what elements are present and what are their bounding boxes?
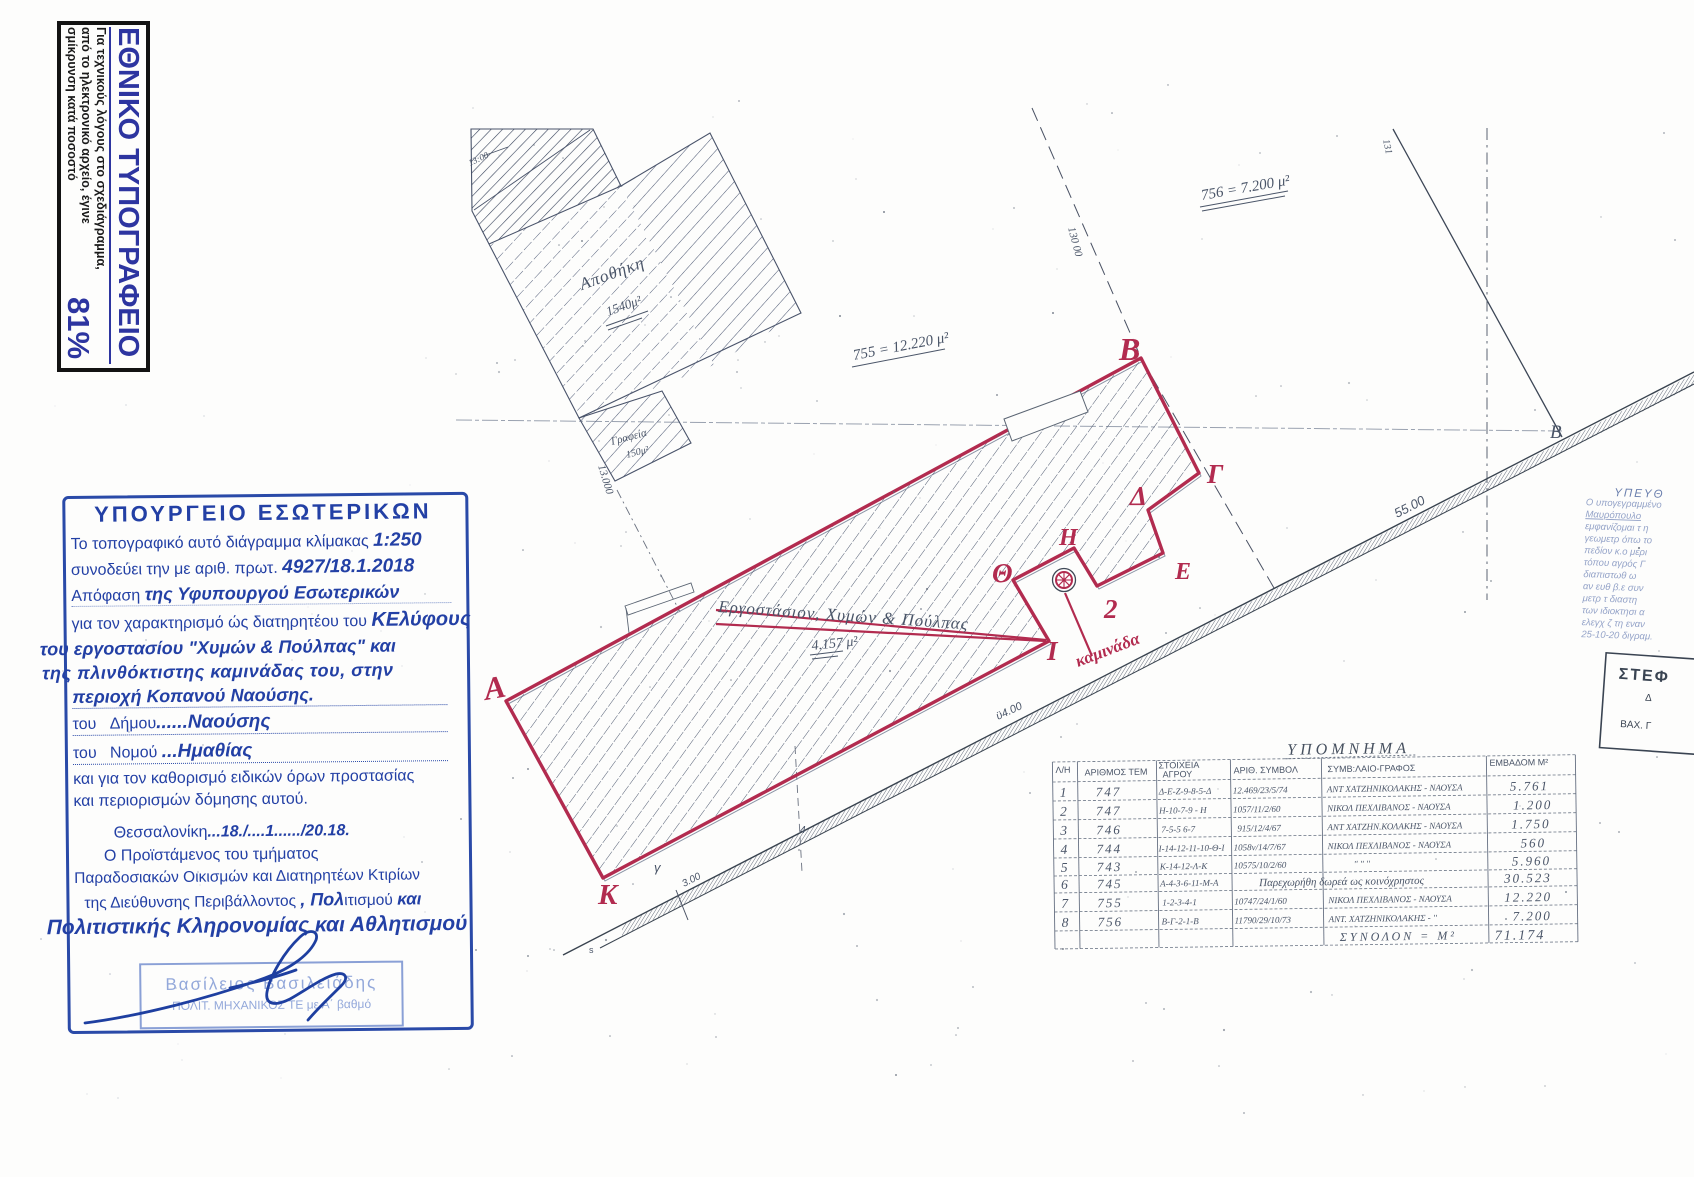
svg-text:4: 4 [1061, 842, 1068, 857]
svg-text:ΝΙΚΟΛ ΠΕΧΛΙΒΑΝΟΣ - ΝΑΟΥΣΑ: ΝΙΚΟΛ ΠΕΧΛΙΒΑΝΟΣ - ΝΑΟΥΣΑ [1327, 839, 1452, 851]
svg-text:12.469/23/5/74: 12.469/23/5/74 [1233, 785, 1288, 796]
svg-text:7.200: 7.200 [1512, 908, 1551, 924]
svg-text:ΑΝΤ ΧΑΤΖΗΝΙΚΟΛΑΚΗΣ - ΝΑΟΥΣΑ: ΑΝΤ ΧΑΤΖΗΝΙΚΟΛΑΚΗΣ - ΝΑΟΥΣΑ [1326, 782, 1463, 794]
svg-text:αν ευθ β.ε συν: αν ευθ β.ε συν [1583, 581, 1644, 594]
svg-text:5.761: 5.761 [1510, 778, 1549, 794]
svg-text:Λ/Η: Λ/Η [1055, 765, 1070, 775]
svg-text:25-10-20 διγραμ.: 25-10-20 διγραμ. [1580, 629, 1653, 643]
svg-text:3: 3 [1059, 823, 1067, 838]
svg-text:7-5-5 6-7: 7-5-5 6-7 [1161, 824, 1195, 834]
svg-text:4: 4 [800, 825, 806, 836]
svg-text:B: B [1550, 422, 1562, 443]
svg-text:5.960: 5.960 [1512, 853, 1551, 869]
svg-text:10747/24/1/60: 10747/24/1/60 [1234, 896, 1287, 907]
svg-text:Δ: Δ [1129, 481, 1147, 511]
svg-text:755 = 12.220 μ²: 755 = 12.220 μ² [852, 330, 951, 364]
svg-text:747: 747 [1096, 784, 1122, 799]
svg-text:ΑΡΙΘ. ΣΥΜΒΟΛ: ΑΡΙΘ. ΣΥΜΒΟΛ [1233, 765, 1298, 776]
svg-text:Γ: Γ [1206, 459, 1224, 489]
svg-text:ΑΓΡΟΥ: ΑΓΡΟΥ [1163, 769, 1193, 779]
svg-text:ΝΙΚΟΛ ΠΕΧΛΙΒΑΝΟΣ - ΝΑΟΥΣΑ: ΝΙΚΟΛ ΠΕΧΛΙΒΑΝΟΣ - ΝΑΟΥΣΑ [1326, 801, 1451, 813]
svg-text:Μαυρόπουλο: Μαυρόπουλο [1585, 509, 1641, 522]
svg-text:Κ-14-12-Λ-Κ: Κ-14-12-Λ-Κ [1159, 861, 1209, 872]
svg-text:ΑΡΙΘΜΟΣ ΤΕΜ: ΑΡΙΘΜΟΣ ΤΕΜ [1084, 767, 1147, 778]
svg-text:10575/10/2/60: 10575/10/2/60 [1234, 860, 1287, 871]
svg-text:6: 6 [1061, 877, 1068, 892]
svg-text:1: 1 [1060, 785, 1067, 800]
svg-text:Η-10-7-9 - Η: Η-10-7-9 - Η [1158, 805, 1207, 816]
svg-text:ΑΝΤ ΧΑΤΖΗΝ.ΚΟΛΑΚΗΣ - ΝΑΟΥΣΑ: ΑΝΤ ΧΑΤΖΗΝ.ΚΟΛΑΚΗΣ - ΝΑΟΥΣΑ [1326, 820, 1463, 832]
svg-text:1058ν/14/7/67: 1058ν/14/7/67 [1234, 842, 1287, 853]
svg-text:Παρεχωρήθη δωρεά ως κοινόχρηστ: Παρεχωρήθη δωρεά ως κοινόχρηστος [1258, 875, 1425, 889]
svg-text:ΕΜΒΑΔΟΜ Μ²: ΕΜΒΑΔΟΜ Μ² [1489, 757, 1548, 768]
svg-text:747: 747 [1096, 803, 1122, 818]
svg-text:1057/11/2/60: 1057/11/2/60 [1233, 804, 1281, 815]
svg-text:71.174: 71.174 [1495, 928, 1546, 944]
svg-text:διαπιστωθ ω: διαπιστωθ ω [1583, 569, 1637, 582]
svg-text:2: 2 [1103, 594, 1118, 624]
svg-text:Α-4-3-6-11-Μ-Α: Α-4-3-6-11-Μ-Α [1159, 878, 1219, 889]
svg-text:Δ-Ε-Ζ-9-8-5-Δ: Δ-Ε-Ζ-9-8-5-Δ [1158, 786, 1212, 797]
svg-text:K: K [597, 879, 619, 911]
svg-text:B: B [1118, 331, 1140, 367]
svg-text:Ι-14-12-11-10-Θ-Ι: Ι-14-12-11-10-Θ-Ι [1158, 843, 1226, 854]
svg-text:130 00: 130 00 [1065, 226, 1085, 259]
svg-text:2: 2 [1060, 804, 1067, 819]
svg-text:Δ: Δ [1645, 693, 1653, 704]
svg-text:30.523: 30.523 [1503, 870, 1552, 886]
svg-text:756 = 7.200 μ²: 756 = 7.200 μ² [1200, 173, 1292, 204]
svg-text:I: I [1046, 636, 1059, 666]
svg-text:744: 744 [1097, 841, 1123, 856]
svg-text:746: 746 [1096, 822, 1122, 837]
svg-text:1.200: 1.200 [1513, 797, 1552, 813]
svg-text:Β-Γ-2-1-Β: Β-Γ-2-1-Β [1162, 916, 1200, 927]
svg-text:ΣΥΝΟΛΟΝ = Μ²: ΣΥΝΟΛΟΝ = Μ² [1339, 928, 1457, 944]
svg-text:131: 131 [1380, 138, 1394, 155]
svg-text:ΣΥΜΒ:ΛΑΙΟ-ΓΡΑΦΟΣ: ΣΥΜΒ:ΛΑΙΟ-ΓΡΑΦΟΣ [1327, 763, 1415, 774]
svg-text:756: 756 [1098, 914, 1124, 929]
svg-text:ελεγχ ζ τη εναν: ελεγχ ζ τη εναν [1582, 617, 1646, 630]
svg-text:1.750: 1.750 [1511, 816, 1550, 832]
svg-text:s: s [589, 945, 594, 955]
svg-text:E: E [1174, 559, 1191, 585]
svg-text:755: 755 [1097, 895, 1123, 910]
svg-text:'' '' '': '' '' '' [1354, 859, 1371, 869]
svg-text:ΣΤΕΦ: ΣΤΕΦ [1618, 666, 1670, 687]
svg-text:των ιδιοκτησι α: των ιδιοκτησι α [1582, 605, 1645, 618]
svg-text:743: 743 [1097, 859, 1123, 874]
svg-text:ΝΙΚΟΛ ΠΕΧΛΙΒΑΝΟΣ - ΝΑΟΥΣΑ: ΝΙΚΟΛ ΠΕΧΛΙΒΑΝΟΣ - ΝΑΟΥΣΑ [1327, 893, 1452, 905]
svg-text:11790/29/10/73: 11790/29/10/73 [1235, 915, 1292, 926]
svg-text:πεδίον κ.ο μερι: πεδίον κ.ο μερι [1584, 545, 1647, 558]
svg-text:H: H [1058, 525, 1079, 551]
svg-text:8: 8 [1062, 915, 1069, 930]
svg-text:7: 7 [1061, 896, 1069, 911]
svg-text:ΥΠΟΜΝΗΜΑ: ΥΠΟΜΝΗΜΑ [1287, 740, 1410, 759]
svg-text:ΒΑΧ. Γ: ΒΑΧ. Γ [1620, 719, 1652, 732]
svg-text:μετρ τ διαστη: μετρ τ διαστη [1581, 593, 1637, 606]
svg-text:γ: γ [654, 860, 662, 875]
svg-text:5: 5 [1061, 860, 1068, 875]
svg-text:εμφανίζομαι τ η: εμφανίζομαι τ η [1585, 521, 1649, 534]
svg-text:745: 745 [1097, 876, 1123, 891]
svg-text:γεωμετρ όπω το: γεωμετρ όπω το [1584, 533, 1652, 546]
svg-text:Θ: Θ [992, 558, 1013, 588]
svg-text:560: 560 [1520, 835, 1546, 850]
svg-text:τόπου αγρός Γ: τόπου αγρός Γ [1584, 557, 1647, 570]
svg-text:1-2-3-4-1: 1-2-3-4-1 [1162, 897, 1197, 907]
svg-text:ΑΝΤ. ΧΑΤΖΗΝΙΚΟΛΑΚΗΣ - '': ΑΝΤ. ΧΑΤΖΗΝΙΚΟΛΑΚΗΣ - '' [1328, 913, 1438, 925]
svg-text:915/12/4/67: 915/12/4/67 [1237, 823, 1281, 834]
svg-text:12.220: 12.220 [1504, 889, 1552, 905]
